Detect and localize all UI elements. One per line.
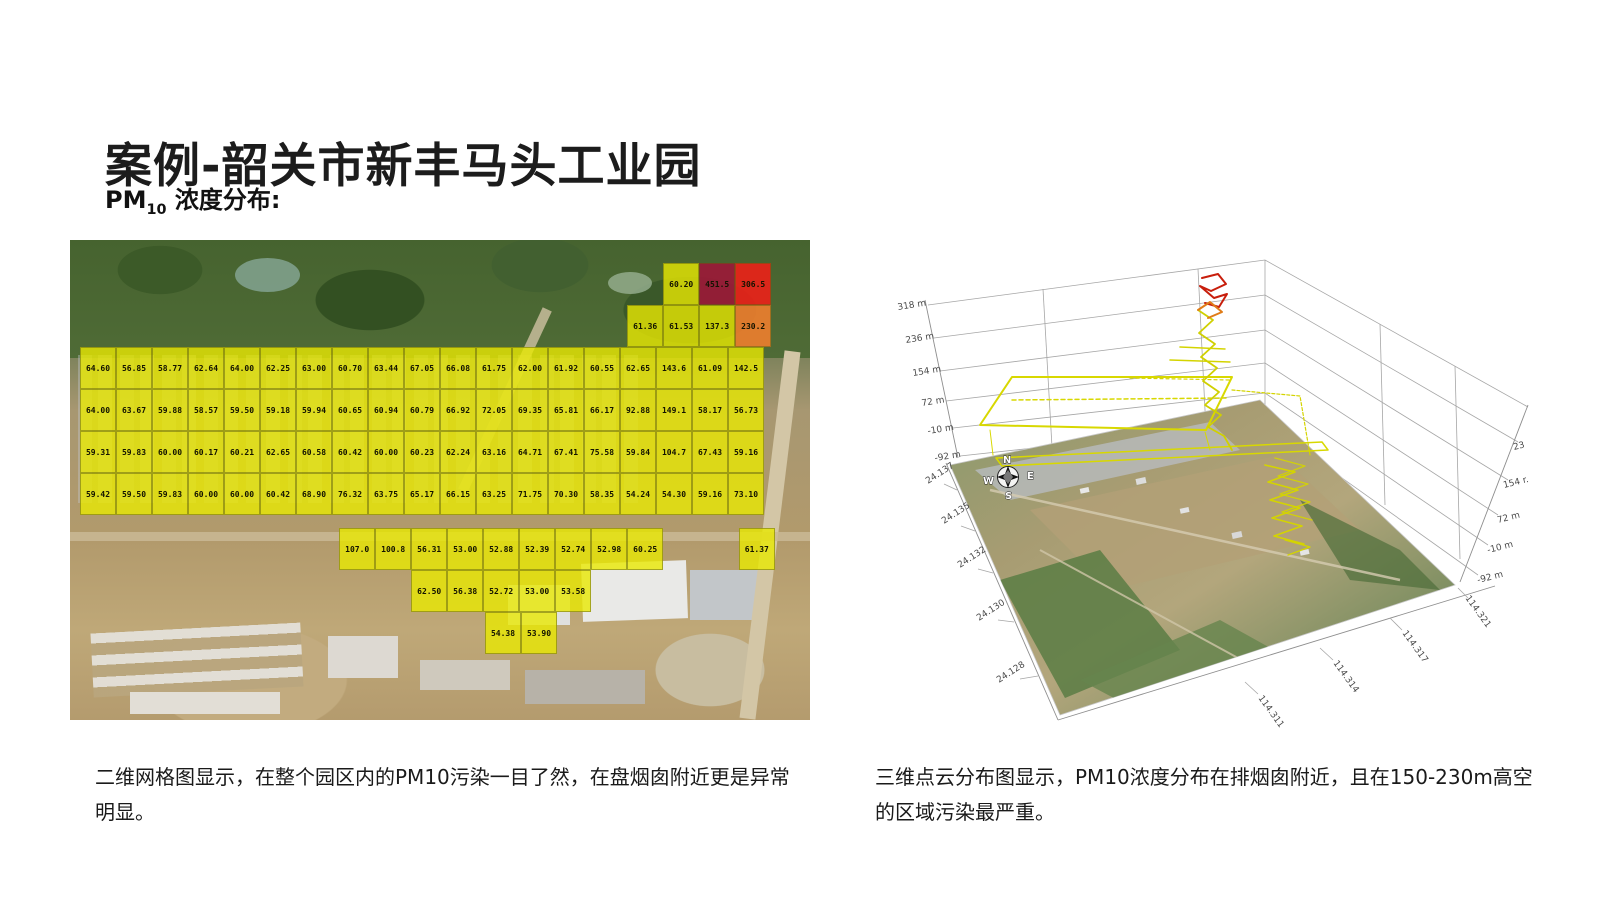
z-axis-tick-label: 23 [1512, 440, 1526, 452]
grid-cell: 137.3 [699, 305, 735, 347]
grid-cell: 60.17 [188, 431, 224, 473]
grid-cell: 64.71 [512, 431, 548, 473]
flight-track-dotted [1012, 398, 1228, 400]
grid-cell: 56.73 [728, 389, 764, 431]
y-axis-tick-label: 24.132 [956, 545, 988, 571]
grid-cell: 59.16 [692, 473, 728, 515]
grid-cell: 62.25 [260, 347, 296, 389]
grid-cell: 63.75 [368, 473, 404, 515]
grid-cell: 107.0 [339, 528, 375, 570]
grid-overlay: 60.20451.5306.561.3661.53137.3230.264.60… [70, 240, 810, 720]
grid-cell: 66.17 [584, 389, 620, 431]
grid-cell: 59.94 [296, 389, 332, 431]
grid-cell: 59.50 [116, 473, 152, 515]
grid-cell: 66.92 [440, 389, 476, 431]
grid-cell: 68.90 [296, 473, 332, 515]
grid-cell: 63.00 [296, 347, 332, 389]
grid-cell: 451.5 [699, 263, 735, 305]
grid-cell: 58.17 [692, 389, 728, 431]
grid-cell: 60.00 [224, 473, 260, 515]
grid-cell: 66.15 [440, 473, 476, 515]
z-axis-tick-label: 236 m [905, 332, 935, 346]
grid-cell: 61.36 [627, 305, 663, 347]
grid-cell: 53.58 [555, 570, 591, 612]
grid-cell: 54.38 [485, 612, 521, 654]
grid-cell: 60.00 [188, 473, 224, 515]
grid-cell: 143.6 [656, 347, 692, 389]
grid-cell: 52.72 [483, 570, 519, 612]
caption-3d: 三维点云分布图显示，PM10浓度分布在排烟囱附近，且在150-230m高空的区域… [875, 760, 1543, 830]
z-axis-tick-label: 318 m [897, 299, 927, 313]
z-axis-tick-label: 154 m [912, 365, 942, 379]
grid-cell: 53.00 [519, 570, 555, 612]
grid-cell: 54.24 [620, 473, 656, 515]
slide-subtitle: PM10 浓度分布: [105, 180, 280, 218]
grid-cell: 62.24 [440, 431, 476, 473]
grid-cell: 62.00 [512, 347, 548, 389]
grid-cell: 60.42 [260, 473, 296, 515]
grid-cell: 56.38 [447, 570, 483, 612]
grid-cell: 59.42 [80, 473, 116, 515]
grid-cell: 100.8 [375, 528, 411, 570]
grid-cell: 59.83 [116, 431, 152, 473]
grid-cell: 62.65 [620, 347, 656, 389]
caption-2d: 二维网格图显示，在整个园区内的PM10污染一目了然，在盘烟囱附近更是异常明显。 [95, 760, 790, 830]
grid-cell: 63.25 [476, 473, 512, 515]
grid-cell: 58.35 [584, 473, 620, 515]
grid-cell: 58.57 [188, 389, 224, 431]
compass-letter: S [1005, 491, 1012, 502]
figure-3d-pointcloud: 318 m236 m154 m72 m-10 m-92 m23154 r.72 … [880, 250, 1530, 730]
y-axis-tick-label: 24.137 [924, 461, 956, 487]
subtitle-subscript: 10 [146, 202, 166, 218]
z-axis-tick-label: -10 m [927, 423, 955, 437]
grid-cell: 60.65 [332, 389, 368, 431]
grid-cell: 64.00 [80, 389, 116, 431]
grid-cell: 67.41 [548, 431, 584, 473]
grid-cell: 59.16 [728, 431, 764, 473]
grid-cell: 62.50 [411, 570, 447, 612]
compass-letter: E [1027, 471, 1034, 482]
grid-cell: 53.90 [521, 612, 557, 654]
grid-cell: 60.00 [368, 431, 404, 473]
grid-cell: 75.58 [584, 431, 620, 473]
grid-cell: 52.39 [519, 528, 555, 570]
grid-cell: 92.88 [620, 389, 656, 431]
grid-cell: 59.50 [224, 389, 260, 431]
grid-cell: 59.83 [152, 473, 188, 515]
subtitle-prefix: PM [105, 186, 146, 214]
grid-cell: 70.30 [548, 473, 584, 515]
grid-cell: 76.32 [332, 473, 368, 515]
grid-cell: 63.16 [476, 431, 512, 473]
grid-cell: 64.60 [80, 347, 116, 389]
grid-cell: 59.31 [80, 431, 116, 473]
grid-cell: 71.75 [512, 473, 548, 515]
y-axis-tick-label: 24.130 [975, 598, 1007, 624]
grid-cell: 142.5 [728, 347, 764, 389]
grid-cell: 61.92 [548, 347, 584, 389]
grid-cell: 61.09 [692, 347, 728, 389]
figure-2d-grid-map: 60.20451.5306.561.3661.53137.3230.264.60… [70, 240, 810, 720]
grid-cell: 60.21 [224, 431, 260, 473]
grid-cell: 63.67 [116, 389, 152, 431]
z-axis-tick-label: 72 m [921, 395, 945, 408]
grid-cell: 52.98 [591, 528, 627, 570]
grid-cell: 60.20 [663, 263, 699, 305]
z-axis-tick-label: 72 m [1496, 511, 1521, 526]
3d-plot-canvas: 318 m236 m154 m72 m-10 m-92 m23154 r.72 … [880, 250, 1530, 730]
grid-cell: 67.05 [404, 347, 440, 389]
grid-cell: 73.10 [728, 473, 764, 515]
grid-cell: 53.00 [447, 528, 483, 570]
x-axis-tick-label: 114.314 [1331, 659, 1361, 695]
grid-cell: 65.81 [548, 389, 584, 431]
compass-rose [997, 466, 1019, 488]
grid-cell: 54.30 [656, 473, 692, 515]
grid-cell: 56.85 [116, 347, 152, 389]
y-axis-tick-label: 24.135 [940, 501, 972, 527]
grid-cell: 60.23 [404, 431, 440, 473]
grid-cell: 60.94 [368, 389, 404, 431]
grid-cell: 60.70 [332, 347, 368, 389]
y-axis-tick-label: 24.128 [995, 660, 1027, 686]
grid-cell: 62.64 [188, 347, 224, 389]
grid-cell: 104.7 [656, 431, 692, 473]
x-axis-tick-label: 114.311 [1256, 694, 1286, 730]
compass-letter: W [983, 476, 994, 487]
z-axis-tick-label: -92 m [1476, 570, 1504, 586]
grid-cell: 64.00 [224, 347, 260, 389]
grid-cell: 60.25 [627, 528, 663, 570]
grid-cell: 61.37 [739, 528, 775, 570]
grid-cell: 62.65 [260, 431, 296, 473]
grid-cell: 63.44 [368, 347, 404, 389]
grid-cell: 61.53 [663, 305, 699, 347]
grid-cell: 60.55 [584, 347, 620, 389]
grid-cell: 69.35 [512, 389, 548, 431]
grid-cell: 306.5 [735, 263, 771, 305]
grid-cell: 60.00 [152, 431, 188, 473]
grid-cell: 60.42 [332, 431, 368, 473]
grid-cell: 67.43 [692, 431, 728, 473]
grid-cell: 56.31 [411, 528, 447, 570]
grid-cell: 66.08 [440, 347, 476, 389]
grid-cell: 59.88 [152, 389, 188, 431]
grid-cell: 59.84 [620, 431, 656, 473]
grid-cell: 60.58 [296, 431, 332, 473]
subtitle-suffix: 浓度分布: [167, 186, 281, 214]
grid-cell: 52.74 [555, 528, 591, 570]
grid-cell: 72.05 [476, 389, 512, 431]
grid-cell: 230.2 [735, 305, 771, 347]
grid-cell: 65.17 [404, 473, 440, 515]
grid-cell: 52.88 [483, 528, 519, 570]
x-axis-tick-label: 114.317 [1400, 629, 1430, 665]
grid-cell: 60.79 [404, 389, 440, 431]
compass-letter: N [1003, 455, 1011, 466]
z-axis-tick-label: 154 r. [1502, 475, 1529, 491]
grid-cell: 61.75 [476, 347, 512, 389]
grid-cell: 149.1 [656, 389, 692, 431]
z-axis-tick-label: -10 m [1486, 540, 1514, 556]
x-axis-tick-label: 114.321 [1463, 594, 1493, 630]
grid-cell: 59.18 [260, 389, 296, 431]
grid-cell: 58.77 [152, 347, 188, 389]
